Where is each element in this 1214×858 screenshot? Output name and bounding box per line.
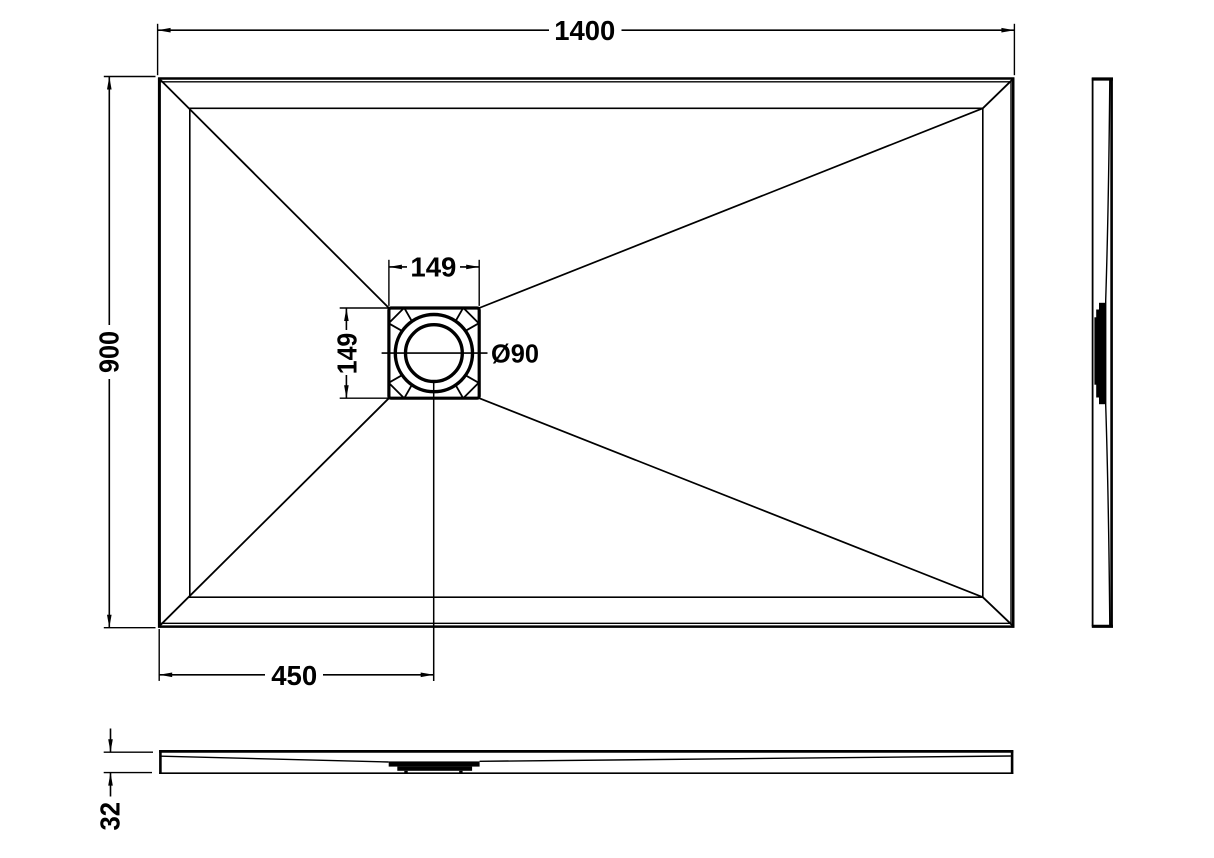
svg-text:450: 450 bbox=[271, 660, 317, 691]
svg-text:149: 149 bbox=[410, 252, 456, 283]
svg-text:32: 32 bbox=[95, 802, 126, 831]
svg-text:Ø90: Ø90 bbox=[491, 339, 539, 369]
svg-text:900: 900 bbox=[94, 331, 125, 373]
svg-text:1400: 1400 bbox=[554, 15, 615, 46]
svg-text:149: 149 bbox=[331, 333, 362, 375]
